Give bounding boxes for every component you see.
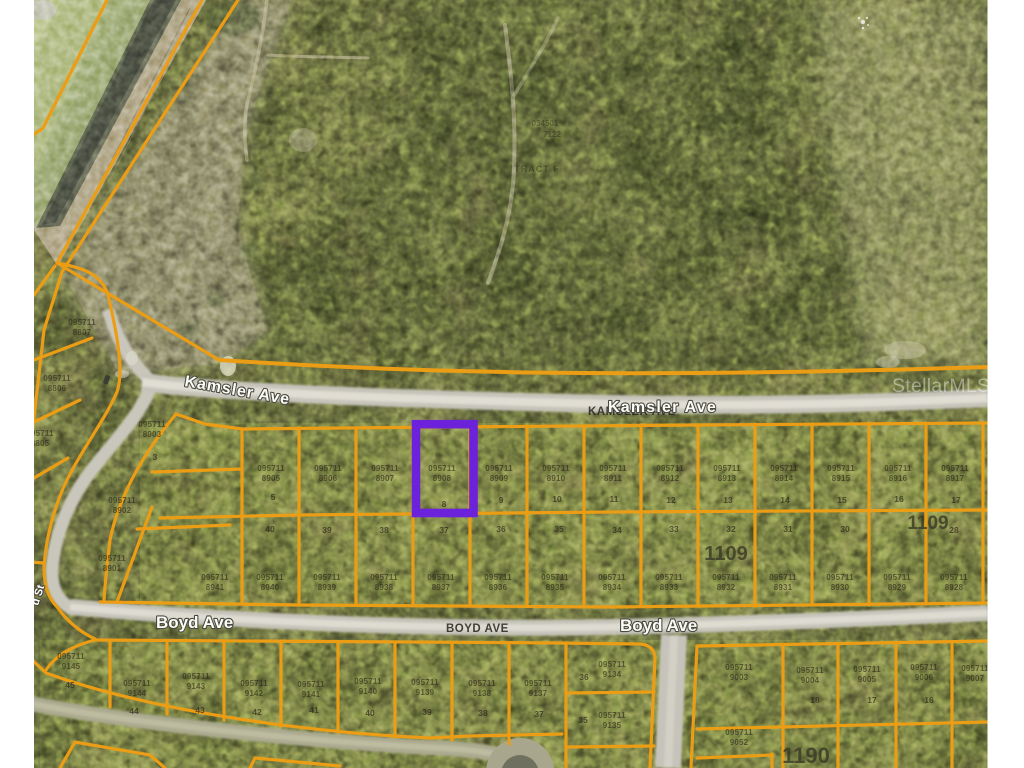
svg-text:30: 30 — [840, 524, 850, 534]
svg-text:Kamsler Ave: Kamsler Ave — [608, 399, 717, 416]
svg-text:16: 16 — [924, 695, 934, 705]
svg-text:15: 15 — [837, 495, 847, 505]
svg-text:StellarMLS: StellarMLS — [892, 375, 990, 397]
svg-text:41: 41 — [309, 705, 319, 715]
svg-text:36: 36 — [579, 672, 589, 682]
svg-text:34: 34 — [612, 525, 622, 535]
svg-text:17: 17 — [951, 495, 961, 505]
svg-text:43: 43 — [195, 705, 205, 715]
svg-text:10: 10 — [552, 494, 562, 504]
svg-text:1109: 1109 — [704, 543, 747, 565]
svg-text:5: 5 — [271, 492, 276, 502]
svg-text:BOYD AVE: BOYD AVE — [446, 623, 509, 635]
svg-text:28: 28 — [949, 525, 959, 535]
svg-text:1190: 1190 — [782, 743, 830, 768]
svg-text:13: 13 — [723, 495, 733, 505]
svg-text:40: 40 — [365, 708, 375, 718]
svg-text:36: 36 — [496, 524, 506, 534]
svg-text:38: 38 — [379, 525, 389, 535]
svg-text:40: 40 — [265, 524, 275, 534]
svg-text:45: 45 — [65, 680, 75, 690]
svg-text:16: 16 — [894, 494, 904, 504]
svg-text:38: 38 — [478, 708, 488, 718]
svg-text:31: 31 — [783, 524, 793, 534]
svg-text:Boyd Ave: Boyd Ave — [156, 613, 233, 632]
svg-text:33: 33 — [669, 524, 679, 534]
svg-text:14: 14 — [780, 495, 790, 505]
svg-text:Boyd Ave: Boyd Ave — [620, 616, 697, 635]
svg-text:7122: 7122 — [543, 130, 561, 139]
svg-text:9: 9 — [499, 495, 504, 505]
svg-text:18: 18 — [810, 695, 820, 705]
svg-text:35: 35 — [578, 715, 588, 725]
svg-text:12: 12 — [666, 495, 676, 505]
svg-text:39: 39 — [422, 707, 432, 717]
svg-text:37: 37 — [439, 525, 449, 535]
svg-text:44: 44 — [129, 706, 139, 716]
svg-text:3: 3 — [153, 452, 158, 462]
svg-text:35: 35 — [554, 524, 564, 534]
svg-text:42: 42 — [252, 707, 262, 717]
svg-text:034501: 034501 — [532, 119, 559, 128]
svg-text:TRACT F: TRACT F — [514, 164, 560, 174]
svg-text:1109: 1109 — [907, 513, 948, 534]
svg-text:17: 17 — [867, 695, 877, 705]
svg-text:8: 8 — [442, 499, 447, 509]
svg-text:37: 37 — [534, 709, 544, 719]
svg-text:32: 32 — [726, 524, 736, 534]
svg-text:39: 39 — [322, 525, 332, 535]
svg-text:11: 11 — [610, 494, 619, 504]
